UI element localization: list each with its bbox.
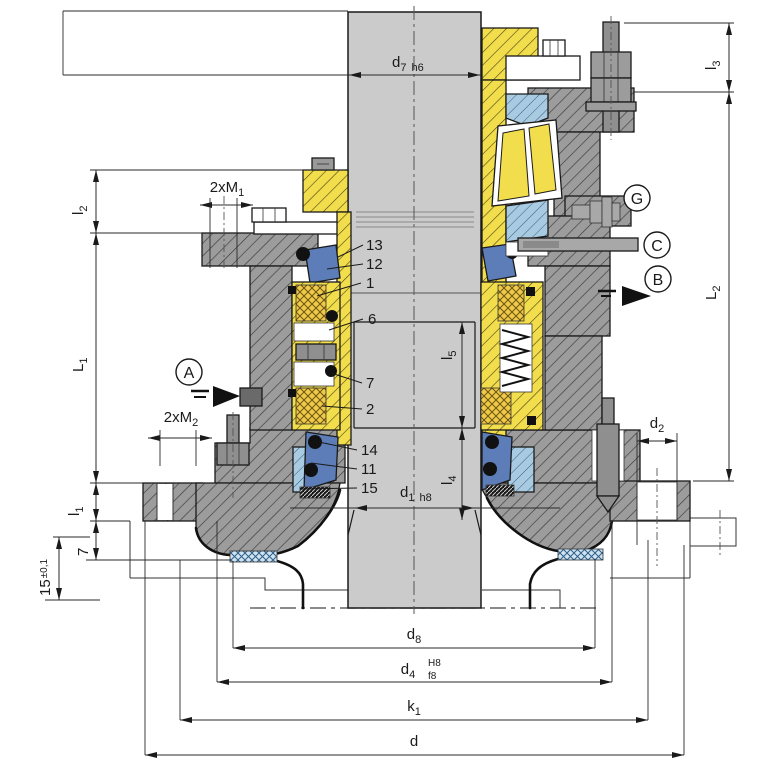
groove-block	[527, 416, 536, 425]
groove-block	[526, 287, 535, 296]
dimension-l1: l1	[66, 483, 130, 521]
callout-2: 2	[366, 401, 374, 418]
housing-lower-1	[545, 266, 610, 336]
washer-strip	[254, 222, 340, 234]
label-l2: l2	[70, 206, 90, 215]
marker-c-label: C	[651, 238, 663, 255]
dimension-L1: L1	[70, 233, 143, 483]
o-ring	[296, 247, 310, 261]
left-flange-hole	[157, 484, 173, 520]
label-k1: k1	[407, 698, 421, 718]
stud-bottom	[597, 424, 619, 496]
grease-fitting	[602, 197, 612, 227]
o-ring	[326, 310, 338, 322]
quench-port	[240, 388, 262, 406]
callout-12: 12	[366, 256, 383, 273]
bearing-ring-lower	[506, 200, 548, 242]
flow-arrow-b	[622, 286, 651, 306]
label-d8: d8	[407, 626, 421, 646]
groove-block	[288, 389, 296, 397]
o-ring	[485, 435, 499, 449]
label-d4: d4	[401, 661, 415, 681]
retainer-plate	[506, 56, 580, 80]
seal-face-lower-left	[296, 388, 326, 424]
label-d4-tol-upper: H8	[428, 658, 441, 669]
label-d: d	[410, 733, 418, 750]
m1-bolt-head	[252, 208, 286, 222]
dimension-L2: L2	[693, 92, 734, 481]
groove-block	[288, 286, 296, 294]
label-l3: l3	[703, 61, 723, 70]
callout-11: 11	[361, 461, 377, 478]
marker-a: A	[176, 359, 240, 407]
seal-face-upper-right	[498, 285, 524, 321]
label-15: 15±0,1	[37, 558, 54, 596]
seal-face-upper-left	[296, 285, 326, 321]
label-m1: 2xM1	[210, 179, 244, 199]
o-ring	[325, 365, 337, 377]
gap	[294, 323, 334, 341]
thread-section	[486, 485, 514, 496]
o-ring	[483, 462, 497, 476]
seal-face-lower-right	[481, 388, 511, 424]
o-ring	[304, 463, 318, 477]
marker-a-label: A	[184, 365, 195, 382]
grease-fitting	[572, 205, 590, 219]
label-d2: d2	[650, 415, 664, 435]
taper-roller	[498, 129, 529, 201]
flow-arrow-a	[213, 386, 240, 407]
grease-fitting	[612, 203, 620, 221]
housing-lower-2	[545, 336, 602, 430]
gasket-left	[230, 551, 277, 562]
label-d4-tol-lower: f8	[428, 671, 437, 682]
callout-1: 1	[366, 275, 374, 292]
callout-15: 15	[361, 480, 378, 497]
dimension-15: 15±0,1	[37, 537, 100, 600]
marker-g-label: G	[631, 191, 643, 208]
label-7: 7	[75, 548, 92, 556]
marker-b-label: B	[653, 272, 664, 289]
marker-c: C	[644, 232, 670, 258]
gasket-right	[558, 549, 603, 560]
drive-collar	[303, 170, 348, 212]
label-L2: L2	[703, 286, 723, 300]
grease-fitting	[590, 201, 602, 223]
seat-ring-upper-left	[305, 245, 340, 283]
callout-6: 6	[368, 311, 376, 328]
pin-detail	[523, 241, 559, 248]
callout-7: 7	[366, 375, 374, 392]
drive-screw	[296, 344, 336, 360]
retainer-bolt	[543, 40, 565, 56]
shaft	[348, 6, 481, 614]
dimension-l3: l3	[624, 23, 734, 92]
label-m2: 2xM2	[164, 409, 198, 429]
casing-step-right	[690, 518, 736, 546]
technical-drawing: d7h6 l3 L2 l2 L1 2xM1	[0, 0, 768, 768]
marker-g: G	[624, 185, 650, 211]
label-l1: l1	[66, 507, 86, 516]
label-L1: L1	[70, 358, 90, 372]
callout-14: 14	[361, 442, 378, 459]
stud-bottom-shank	[602, 398, 614, 426]
callout-13: 13	[366, 237, 383, 254]
